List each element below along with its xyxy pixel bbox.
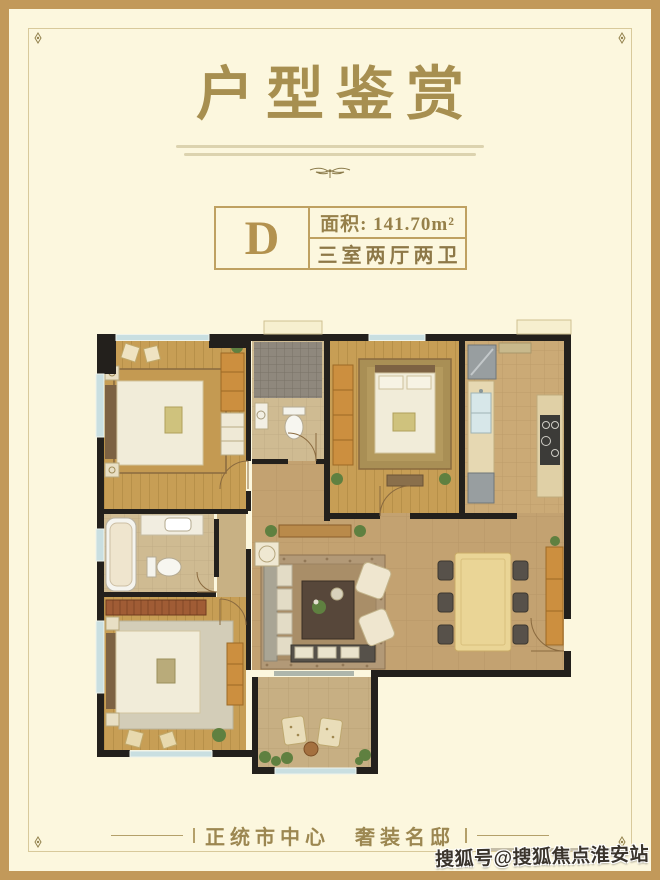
floor-plan	[69, 309, 609, 787]
tagline-rule	[111, 835, 183, 836]
wing-ornament-icon	[9, 164, 651, 185]
dresser	[106, 600, 206, 615]
unit-letter: D	[216, 208, 310, 268]
bed	[106, 617, 233, 729]
tagline-bar	[193, 828, 195, 843]
vanity-sink	[141, 515, 203, 535]
toilet	[283, 407, 305, 439]
outer-frame: 户型鉴赏 D 面积: 141.70m² 三室两厅两卫	[0, 0, 660, 880]
fine-print	[9, 145, 651, 156]
page-title: 户型鉴赏	[9, 47, 651, 131]
toilet	[147, 557, 181, 577]
coffee-table	[302, 581, 354, 639]
tagline-rule	[477, 835, 549, 836]
plant-icon	[354, 525, 366, 537]
stove-counter	[537, 395, 563, 497]
balcony-table	[304, 742, 318, 756]
sideboard	[546, 536, 563, 645]
tagline-bar	[465, 828, 467, 843]
wardrobe	[227, 643, 243, 705]
corner-ornament-icon	[616, 32, 628, 44]
plant-icon	[212, 728, 226, 742]
wardrobe	[221, 353, 244, 455]
unit-rooms: 三室两厅两卫	[310, 239, 465, 268]
shower-area	[254, 342, 322, 398]
bathtub	[106, 518, 136, 591]
fine-print-line	[184, 153, 476, 156]
page-background: 户型鉴赏 D 面积: 141.70m² 三室两厅两卫	[9, 9, 651, 871]
corridor	[217, 514, 246, 599]
fine-print-line	[176, 145, 484, 148]
balcony-slider-door	[274, 671, 354, 676]
bathroom-sink	[255, 403, 268, 429]
plant-icon	[265, 525, 277, 537]
side-table	[255, 542, 279, 566]
bed	[359, 359, 451, 469]
corner-ornament-icon	[32, 32, 44, 44]
bed	[105, 366, 226, 477]
unit-badge: D 面积: 141.70m² 三室两厅两卫	[214, 206, 467, 270]
plant-icon	[550, 536, 560, 546]
plant-icon	[331, 473, 343, 485]
tv-console	[265, 525, 366, 537]
dining-table	[455, 553, 511, 651]
room-bathroom-top	[252, 341, 324, 461]
wardrobe	[333, 365, 353, 465]
exterior-ledges	[264, 320, 571, 334]
plant-icon	[439, 473, 451, 485]
unit-area: 面积: 141.70m²	[310, 208, 465, 239]
watermark: 搜狐号@搜狐焦点淮安站	[435, 839, 650, 872]
fridge	[468, 345, 496, 379]
tagline-text: 正统市中心 奢装名邸	[205, 821, 455, 850]
